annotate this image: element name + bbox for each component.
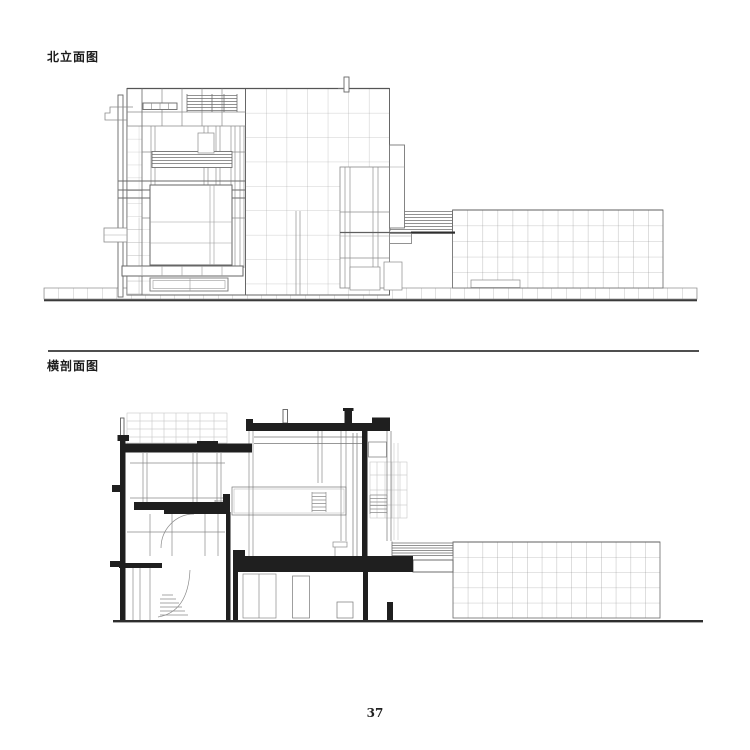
section-terrace-railing (392, 542, 453, 557)
north-elevation-drawing (40, 75, 705, 307)
page-number: 37 (0, 706, 750, 720)
elevation-right-wing (453, 210, 664, 288)
cross-section-drawing (105, 403, 705, 628)
section-right-wing (453, 542, 660, 618)
figure-label-north-elevation: 北立面图 (47, 48, 99, 65)
book-page: 北立面图 (0, 0, 750, 750)
figure-label-cross-section: 横剖面图 (47, 357, 99, 374)
section-poche (110, 408, 413, 620)
section-ground-line (113, 620, 703, 622)
section-divider-rule (48, 350, 699, 352)
